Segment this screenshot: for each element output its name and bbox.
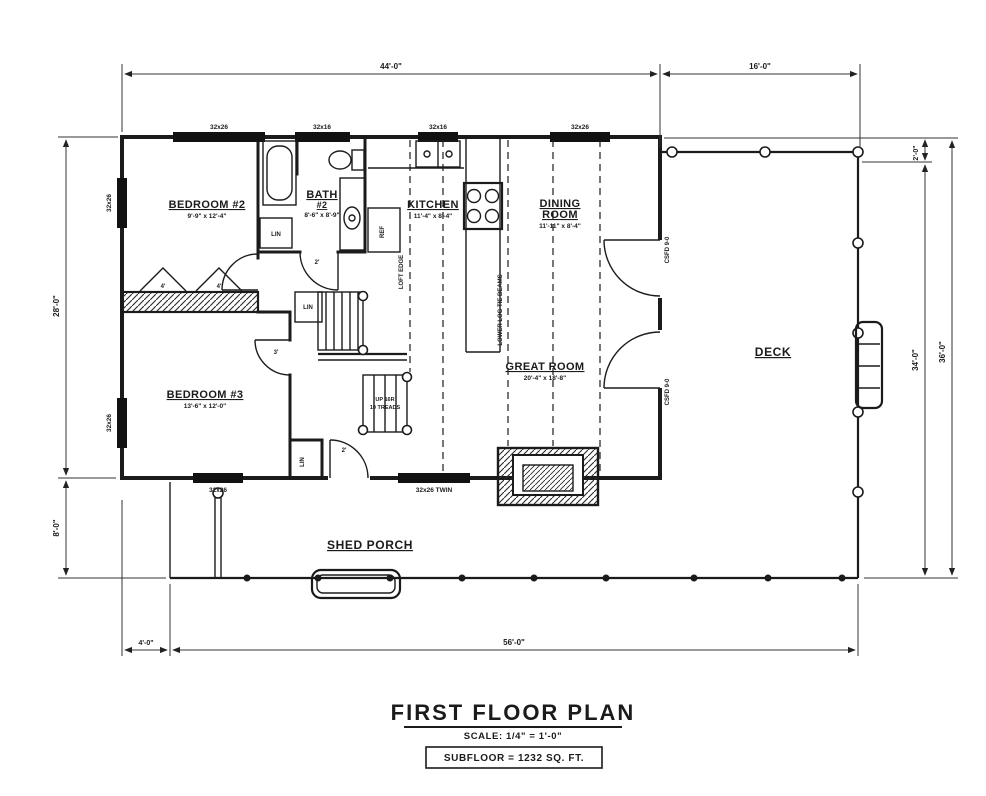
overhead-lines xyxy=(410,140,600,474)
room-dims-dining: 11'-11" x 8'-4" xyxy=(539,223,581,230)
note-2ft-a: 2' xyxy=(342,448,347,454)
room-label-deck: DECK xyxy=(755,345,791,359)
sheet-title: FIRST FLOOR PLAN xyxy=(391,700,636,725)
title-block: FIRST FLOOR PLAN SCALE: 1/4" = 1'-0" SUB… xyxy=(391,700,636,768)
room-dims-bedroom3: 13'-6" x 12'-0" xyxy=(184,403,227,410)
dim-bottom-main: 56'-0" xyxy=(503,638,525,647)
porch-steps xyxy=(312,570,400,598)
room-label-great: GREAT ROOM xyxy=(506,361,585,373)
note-lin-bath: LIN xyxy=(271,232,281,238)
note-tie-beams: LOWER LOG TIE BEAMS xyxy=(498,274,504,345)
dim-top-main: 44'-0" xyxy=(380,62,402,71)
room-label-bedroom3: BEDROOM #3 xyxy=(167,389,244,401)
room-dims-great: 20'-4" x 18'-8" xyxy=(524,375,567,382)
dim-left-main: 28'-0" xyxy=(52,295,61,317)
note-csfd-2: CSFD 9-0 xyxy=(665,378,671,405)
dim-right-outer: 36'-0" xyxy=(938,341,947,363)
window-label: 32x26 xyxy=(210,124,228,131)
room-label-kitchen: KITCHEN xyxy=(407,199,459,211)
dim-right-inner: 34'-0" xyxy=(911,349,920,371)
stairs xyxy=(318,292,412,435)
stove xyxy=(464,183,502,229)
door-openings xyxy=(328,240,664,482)
dim-right-gap: 2'-0" xyxy=(913,145,920,160)
room-label-porch: SHED PORCH xyxy=(327,538,413,552)
window-label: 32x26 xyxy=(209,487,227,494)
window-label: 32x26 xyxy=(571,124,589,131)
window-label: 32x16 xyxy=(313,124,331,131)
floor-plan-sheet: BEDROOM #2 9'-9" x 12'-4" BATH #2 8'-6" … xyxy=(0,0,986,796)
toilet xyxy=(329,151,351,169)
kitchen-fixtures xyxy=(368,139,502,352)
room-dims-kitchen: 11'-4" x 8'-4" xyxy=(414,213,453,220)
bathtub xyxy=(263,141,296,205)
note-4ft-b: 4' xyxy=(217,284,222,290)
fireplace xyxy=(498,448,598,505)
room-dims-bedroom2: 9'-9" x 12'-4" xyxy=(188,213,227,220)
note-loft-edge: LOFT EDGE xyxy=(399,255,405,289)
sheet-scale: SCALE: 1/4" = 1'-0" xyxy=(464,731,562,742)
vanity xyxy=(340,178,365,250)
room-label-dining2: ROOM xyxy=(542,209,578,221)
room-label-bedroom2: BEDROOM #2 xyxy=(169,199,246,211)
note-stairs-2: 10 TREADS xyxy=(370,405,401,411)
note-lin-bed3: LIN xyxy=(300,457,306,467)
window-label: 32x26 xyxy=(106,194,113,212)
dim-top-deck: 16'-0" xyxy=(749,62,771,71)
note-3ft-a: 3' xyxy=(274,350,279,356)
note-4ft-a: 4' xyxy=(161,284,166,290)
note-ref: REF xyxy=(380,226,386,238)
note-2ft-b: 2' xyxy=(315,260,320,266)
deck-railing xyxy=(660,147,882,578)
bath-sink xyxy=(344,207,360,229)
note-csfd-1: CSFD 9-0 xyxy=(665,236,671,263)
window-label: 32x26 TWIN xyxy=(416,487,453,494)
window-label: 32x26 xyxy=(106,414,113,432)
note-stairs-1: UP 16R xyxy=(375,397,394,403)
room-label-bath-num: #2 xyxy=(317,200,328,210)
room-dims-bath: 8'-6" x 8'-9" xyxy=(304,212,339,219)
dim-left-porch: 8'-0" xyxy=(52,519,61,536)
subfloor-area: SUBFLOOR = 1232 SQ. FT. xyxy=(444,753,584,764)
note-lin-hall: LIN xyxy=(303,305,313,311)
window-label: 32x16 xyxy=(429,124,447,131)
dim-bottom-offset: 4'-0" xyxy=(138,640,153,647)
floor-plan-drawing: BEDROOM #2 9'-9" x 12'-4" BATH #2 8'-6" … xyxy=(0,0,986,796)
